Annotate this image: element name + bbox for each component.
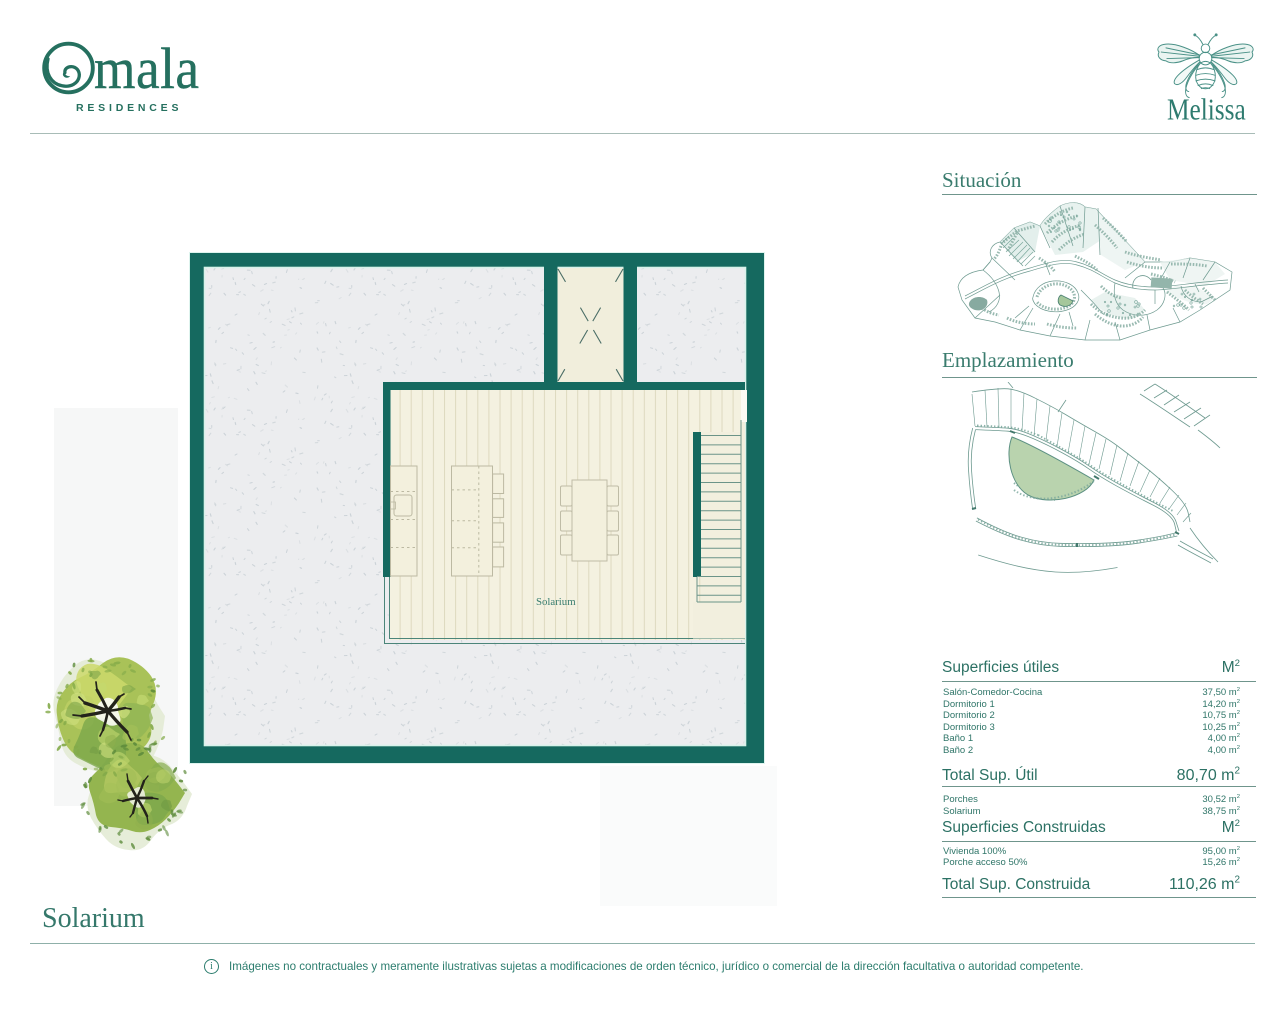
svg-text:Solarium: Solarium — [536, 596, 576, 608]
svg-text:RESIDENCES: RESIDENCES — [76, 102, 182, 114]
svg-text:Melissa: Melissa — [1167, 93, 1246, 127]
svg-text:mala: mala — [94, 40, 200, 102]
